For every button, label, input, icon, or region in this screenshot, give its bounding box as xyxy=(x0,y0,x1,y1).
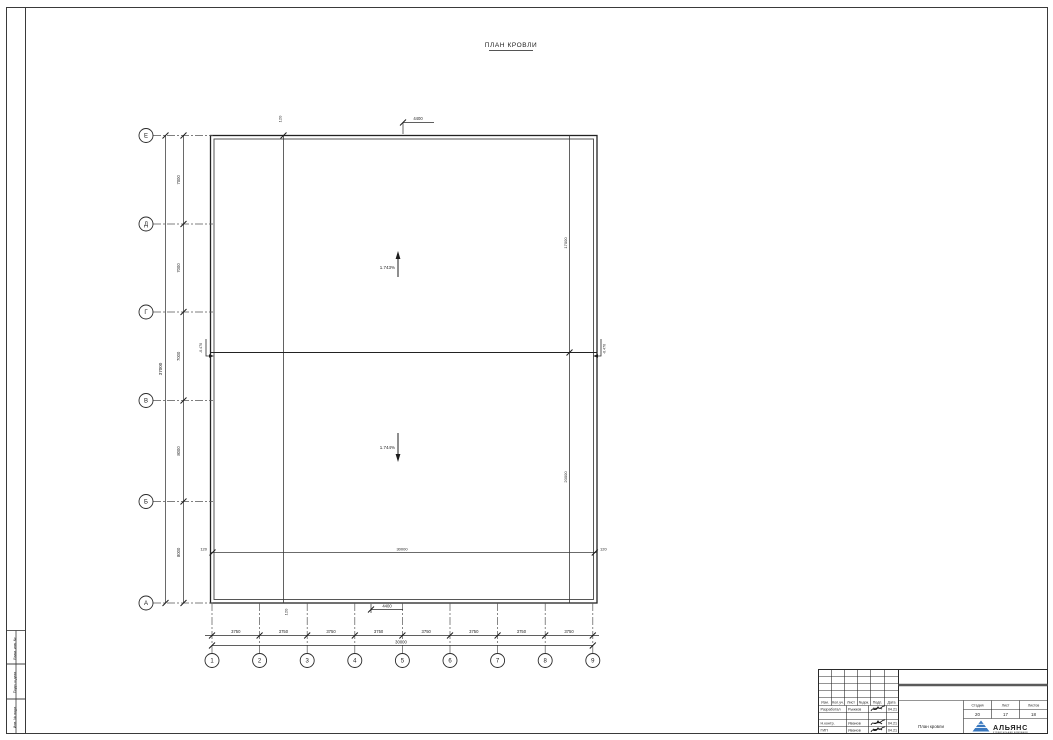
side-strip-label: Инв. № подл. xyxy=(13,706,17,728)
stamp-header: Лист xyxy=(847,701,855,705)
dim-col-spacing: 3750 xyxy=(564,629,574,634)
slope-arrow-up xyxy=(396,251,401,259)
side-strip-label: Взам. инв. № xyxy=(13,637,17,659)
drawing-title: ПЛАН КРОВЛИ xyxy=(485,42,538,51)
stamp-meta-value: 18 xyxy=(1031,712,1036,717)
dim-col-spacing: 3750 xyxy=(279,629,289,634)
signature xyxy=(871,727,885,732)
stamp-role: ГИП xyxy=(821,729,829,733)
parapet-inner xyxy=(214,139,594,600)
valley-mark-left: -0.470 xyxy=(199,343,203,353)
stamp-meta-value: 20 xyxy=(975,712,980,717)
stamp-meta-header: Стадия xyxy=(972,704,984,708)
leader-arrow xyxy=(209,354,214,358)
slope-upper-label: 1.743% xyxy=(380,265,395,270)
stamp-header: Дата xyxy=(888,701,896,705)
row-axis-label: Д xyxy=(144,222,148,228)
left-dimension-chains: 37000 7000 7000 7000 8000 8000 xyxy=(158,133,187,607)
logo-triangle-icon xyxy=(973,721,990,732)
row-axis-label: Б xyxy=(144,500,148,506)
stamp-meta-header: Лист xyxy=(1002,704,1010,708)
side-strip: Взам. инв. № Подп. и дата Инв. № подл. xyxy=(7,631,26,734)
dim-inner-bottom-right: 120 xyxy=(600,547,607,552)
dim-col-spacing: 3750 xyxy=(231,629,241,634)
dim-col-spacing: 3750 xyxy=(326,629,336,634)
drawing-sheet: Взам. инв. № Подп. и дата Инв. № подл. П… xyxy=(0,0,1053,740)
roof-outline xyxy=(211,136,598,604)
stamp-header: №док. xyxy=(859,701,870,705)
dim-row-total: 37000 xyxy=(158,362,163,375)
dim-inner-bottom-total: 30000 xyxy=(396,547,408,552)
dim-ticks xyxy=(163,133,187,607)
dim-col-spacing: 3750 xyxy=(422,629,432,634)
dim-bottom-parapet: 120 xyxy=(284,608,289,615)
stamp-role: Разработал xyxy=(821,708,841,712)
title-block: Изм. Кол.уч. Лист №док. Подп. Дата Разра… xyxy=(819,670,1048,735)
dim-row-spacing: 7000 xyxy=(176,174,181,184)
dim-col-spacing: 3750 xyxy=(517,629,527,634)
row-axis-label: В xyxy=(144,399,148,405)
row-axes: Е Д Г В Б А xyxy=(139,129,213,611)
dim-row-spacing: 7000 xyxy=(176,263,181,273)
valley-leaders: -0.470 -0.470 xyxy=(199,339,607,358)
row-axis-label: А xyxy=(144,601,148,607)
stamp-header: Изм. xyxy=(821,701,829,705)
signature xyxy=(871,720,885,725)
stamp-header: Подп. xyxy=(873,701,883,705)
side-strip-label: Подп. и дата xyxy=(13,672,17,693)
dim-top-parapet: 120 xyxy=(278,115,283,122)
signatures xyxy=(871,706,885,732)
dim-col-spacing: 3750 xyxy=(469,629,479,634)
stamp-date: 04.21 xyxy=(888,722,897,726)
stamp-meta-header: Листов xyxy=(1028,704,1040,708)
bottom-dimension-chains: 3750 3750 3750 3750 3750 3750 3750 3750 … xyxy=(205,629,599,649)
signature xyxy=(871,706,885,711)
stamp-name: Иванов xyxy=(848,729,861,733)
stamp-role: Н.контр. xyxy=(821,722,835,726)
dim-top-offset: 4400 xyxy=(413,116,423,121)
dim-bottom-offset: 4400 xyxy=(382,604,392,609)
bottom-small-dimensions: 4400 120 xyxy=(284,604,404,616)
stamp-meta-value: 17 xyxy=(1003,712,1008,717)
org-logo: АЛЬЯНС строительная компания xyxy=(971,721,1028,735)
parapet-outer xyxy=(211,136,598,604)
dim-inner-bottom-left: 120 xyxy=(200,547,207,552)
stamp-date: 04.21 xyxy=(888,708,897,712)
row-axis-label: Е xyxy=(144,134,148,140)
dim-row-spacing: 8000 xyxy=(176,547,181,557)
drawing-canvas: Взам. инв. № Подп. и дата Инв. № подл. П… xyxy=(0,0,1053,740)
slope-annotations: 1.743% 1.744% xyxy=(380,251,401,462)
stamp-name: Рыжков xyxy=(848,708,861,712)
stamp-header: Кол.уч. xyxy=(832,701,844,705)
stamp-doc-title: План кровли xyxy=(918,724,944,729)
page-title: ПЛАН КРОВЛИ xyxy=(485,42,538,49)
dim-row-spacing: 7000 xyxy=(176,351,181,361)
slope-arrow-down xyxy=(396,454,401,462)
inner-right-dimension: 17000 20000 xyxy=(563,237,573,483)
valley-mark-right: -0.470 xyxy=(603,344,607,354)
slope-lower-label: 1.744% xyxy=(380,445,395,450)
org-subtitle: строительная компания xyxy=(993,731,1028,734)
inner-bottom-dimension: 120 30000 120 xyxy=(200,547,607,556)
dim-inner-right-upper: 17000 xyxy=(563,237,568,249)
dim-inner-right-lower: 20000 xyxy=(563,471,568,483)
dim-col-spacing: 3750 xyxy=(374,629,384,634)
stamp-name: Иванов xyxy=(848,722,861,726)
stamp-date: 04.21 xyxy=(888,729,897,733)
dim-row-spacing: 8000 xyxy=(176,446,181,456)
dim-col-total: 30000 xyxy=(395,640,407,645)
